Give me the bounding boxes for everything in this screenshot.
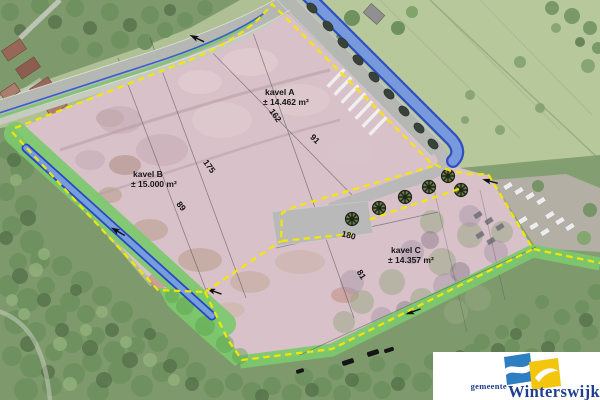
logo-name: Winterswijk [508, 382, 600, 400]
site-plan-map[interactable]: kavel A ± 14.462 m² kavel B ± 15.000 m² … [0, 0, 600, 400]
parcel-b-name: kavel B [133, 169, 163, 179]
tree-icon [423, 181, 436, 194]
tree-icon [346, 213, 359, 226]
parcel-a-area: ± 14.462 m² [263, 97, 309, 107]
parcel-a-name: kavel A [265, 87, 294, 97]
parcel-b-area: ± 15.000 m² [131, 179, 177, 189]
parcel-c-area: ± 14.357 m² [388, 255, 434, 265]
logo-prefix: gemeente [471, 381, 507, 391]
tree-icon [373, 202, 386, 215]
plan-screenshot: kavel A ± 14.462 m² kavel B ± 15.000 m² … [0, 0, 600, 400]
municipality-logo: gemeente Winterswijk [433, 352, 600, 400]
tree-icon [399, 191, 412, 204]
tree-icon [442, 170, 455, 183]
parcel-c-name: kavel C [391, 245, 421, 255]
